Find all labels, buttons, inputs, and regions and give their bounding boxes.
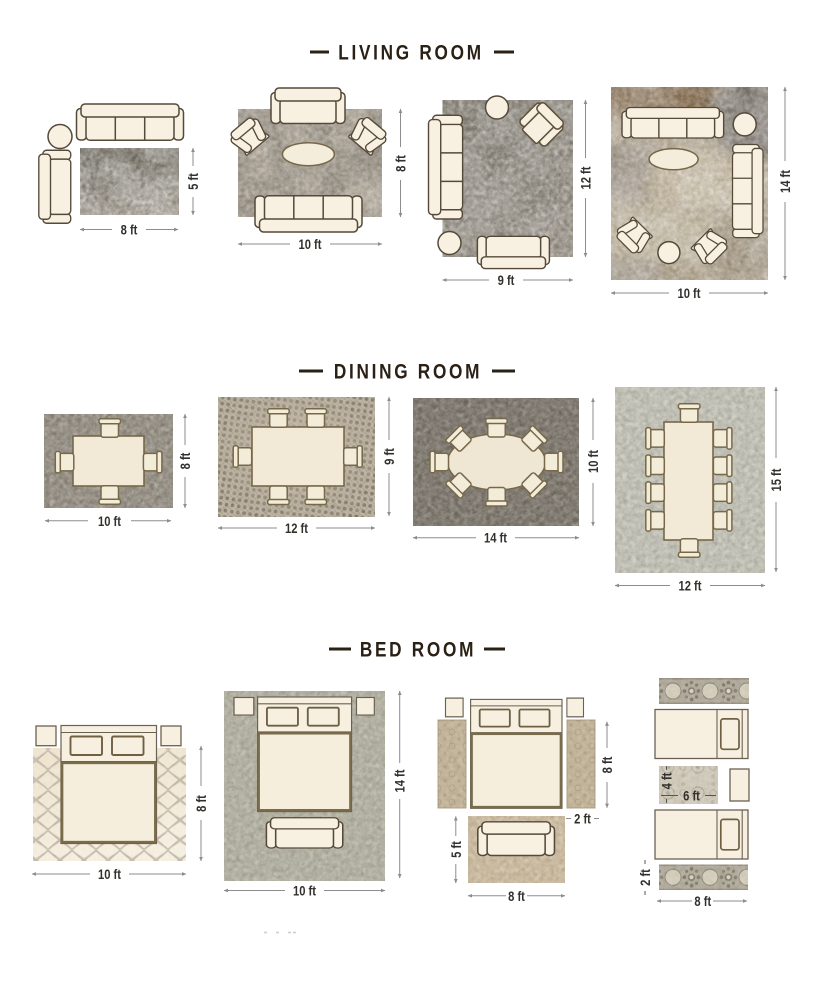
svg-text:10 ft: 10 ft bbox=[677, 285, 701, 302]
svg-text:5 ft: 5 ft bbox=[447, 840, 464, 857]
svg-text:8 ft: 8 ft bbox=[508, 887, 525, 904]
svg-text:8 ft: 8 ft bbox=[121, 221, 138, 238]
svg-text:DINING ROOM: DINING ROOM bbox=[334, 360, 482, 384]
svg-text:6 ft: 6 ft bbox=[683, 787, 700, 804]
svg-text:14 ft: 14 ft bbox=[777, 169, 794, 193]
svg-text:14 ft: 14 ft bbox=[484, 529, 508, 546]
svg-text:4 ft: 4 ft bbox=[658, 772, 675, 789]
svg-text:2 ft: 2 ft bbox=[637, 868, 654, 885]
svg-text:9 ft: 9 ft bbox=[498, 272, 515, 289]
svg-text:8 ft: 8 ft bbox=[694, 893, 711, 910]
svg-text:LIVING ROOM: LIVING ROOM bbox=[338, 41, 483, 65]
svg-text:10 ft: 10 ft bbox=[298, 236, 322, 253]
svg-text:9 ft: 9 ft bbox=[381, 447, 398, 464]
svg-text:5 ft: 5 ft bbox=[185, 172, 202, 189]
svg-text:10 ft: 10 ft bbox=[98, 512, 122, 529]
svg-text:8 ft: 8 ft bbox=[599, 756, 616, 773]
svg-text:BED ROOM: BED ROOM bbox=[360, 638, 476, 662]
svg-text:12 ft: 12 ft bbox=[577, 166, 594, 190]
svg-text:8 ft: 8 ft bbox=[177, 452, 194, 469]
svg-text:8 ft: 8 ft bbox=[193, 794, 210, 811]
svg-text:2 ft: 2 ft bbox=[574, 810, 591, 827]
svg-text:14 ft: 14 ft bbox=[391, 769, 408, 793]
svg-text:12 ft: 12 ft bbox=[285, 520, 309, 537]
svg-text:10 ft: 10 ft bbox=[293, 882, 317, 899]
svg-text:10 ft: 10 ft bbox=[585, 449, 602, 473]
svg-text:10 ft: 10 ft bbox=[98, 866, 122, 883]
svg-text:15 ft: 15 ft bbox=[768, 468, 785, 492]
svg-text:8 ft: 8 ft bbox=[392, 154, 409, 171]
svg-text:12 ft: 12 ft bbox=[678, 577, 702, 594]
